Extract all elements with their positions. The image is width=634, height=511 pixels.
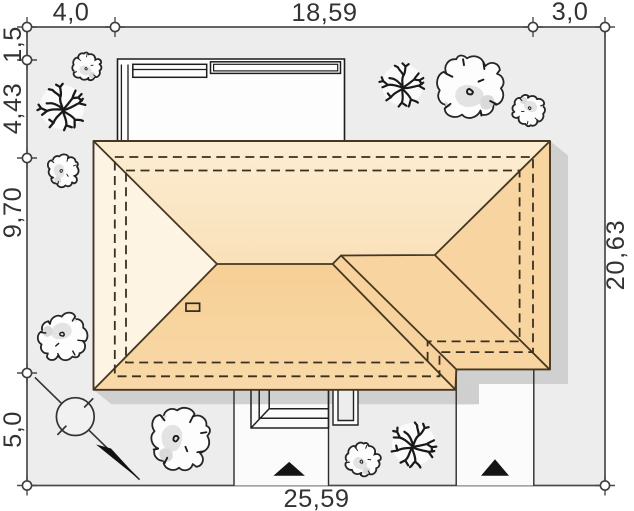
svg-text:4,43: 4,43 xyxy=(0,83,27,134)
svg-text:25,59: 25,59 xyxy=(283,485,349,511)
svg-text:5,0: 5,0 xyxy=(0,411,27,448)
svg-text:3,0: 3,0 xyxy=(552,0,589,26)
svg-text:20,63: 20,63 xyxy=(602,219,630,291)
svg-text:9,70: 9,70 xyxy=(0,187,27,238)
svg-text:1,5: 1,5 xyxy=(0,26,27,63)
svg-text:4,0: 4,0 xyxy=(53,0,90,27)
svg-text:18,59: 18,59 xyxy=(291,0,357,27)
